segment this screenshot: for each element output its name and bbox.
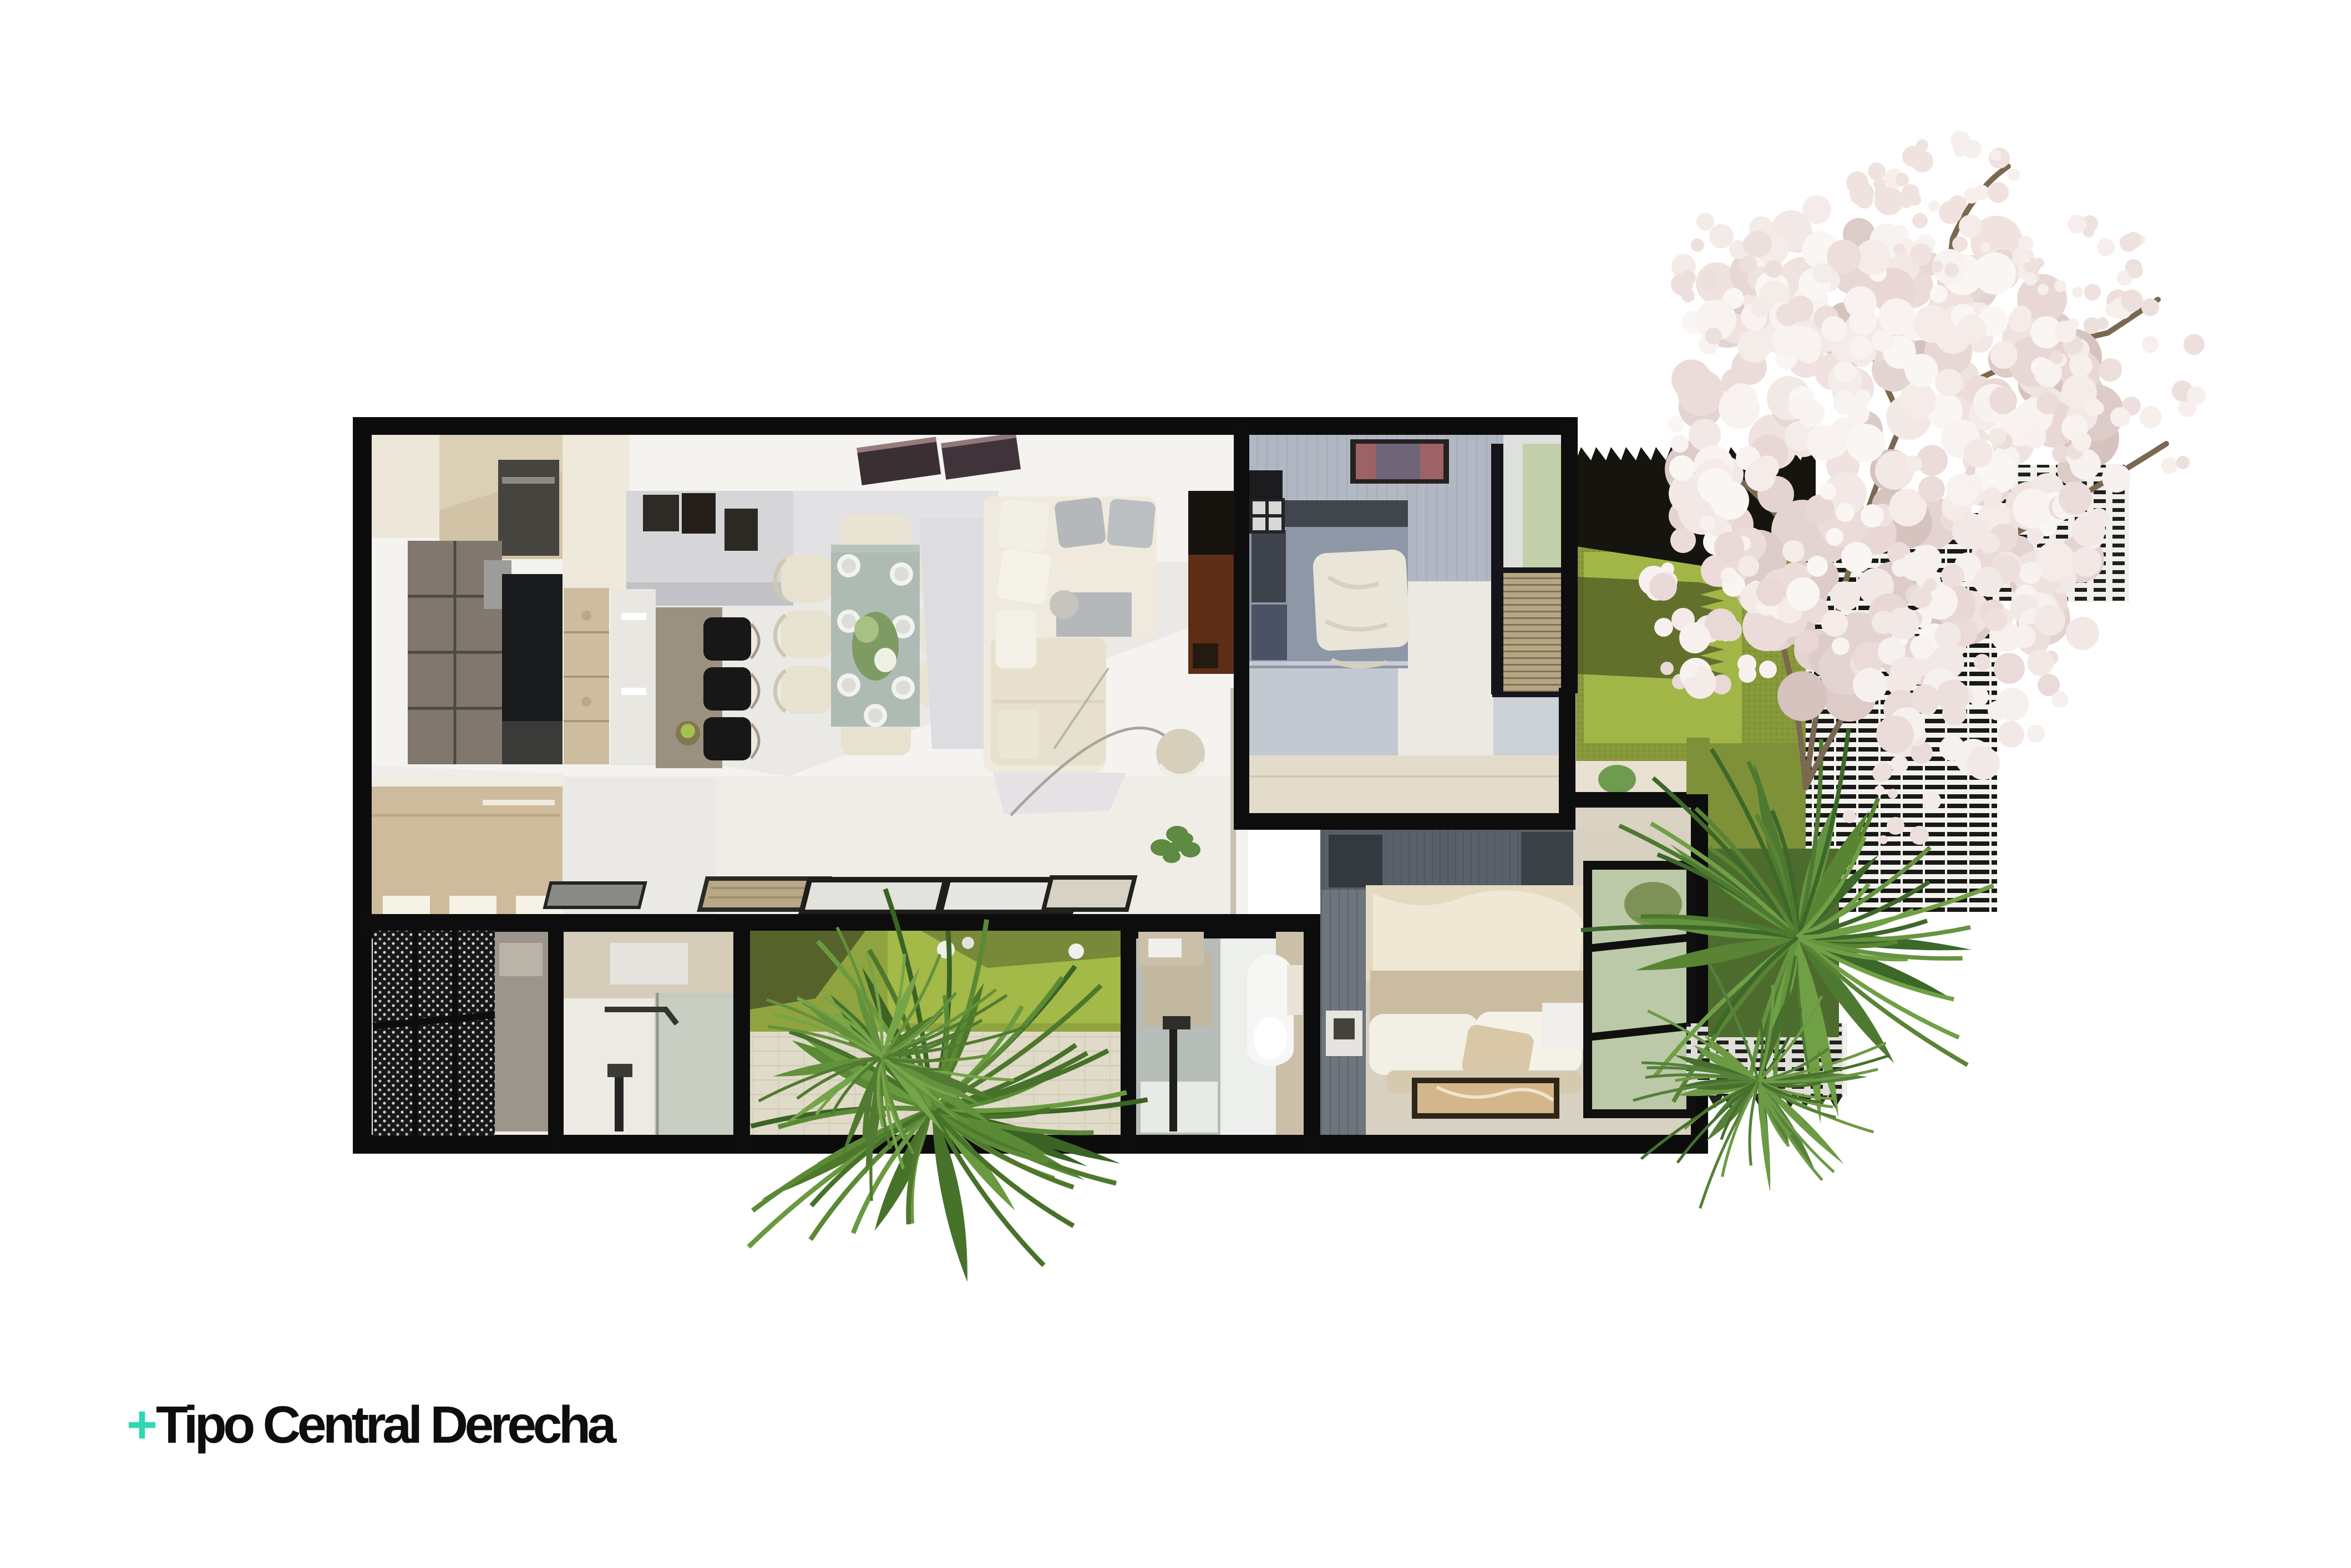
svg-text:+: +: [126, 1395, 158, 1454]
svg-text:Tipo Central Derecha: Tipo Central Derecha: [156, 1396, 617, 1454]
